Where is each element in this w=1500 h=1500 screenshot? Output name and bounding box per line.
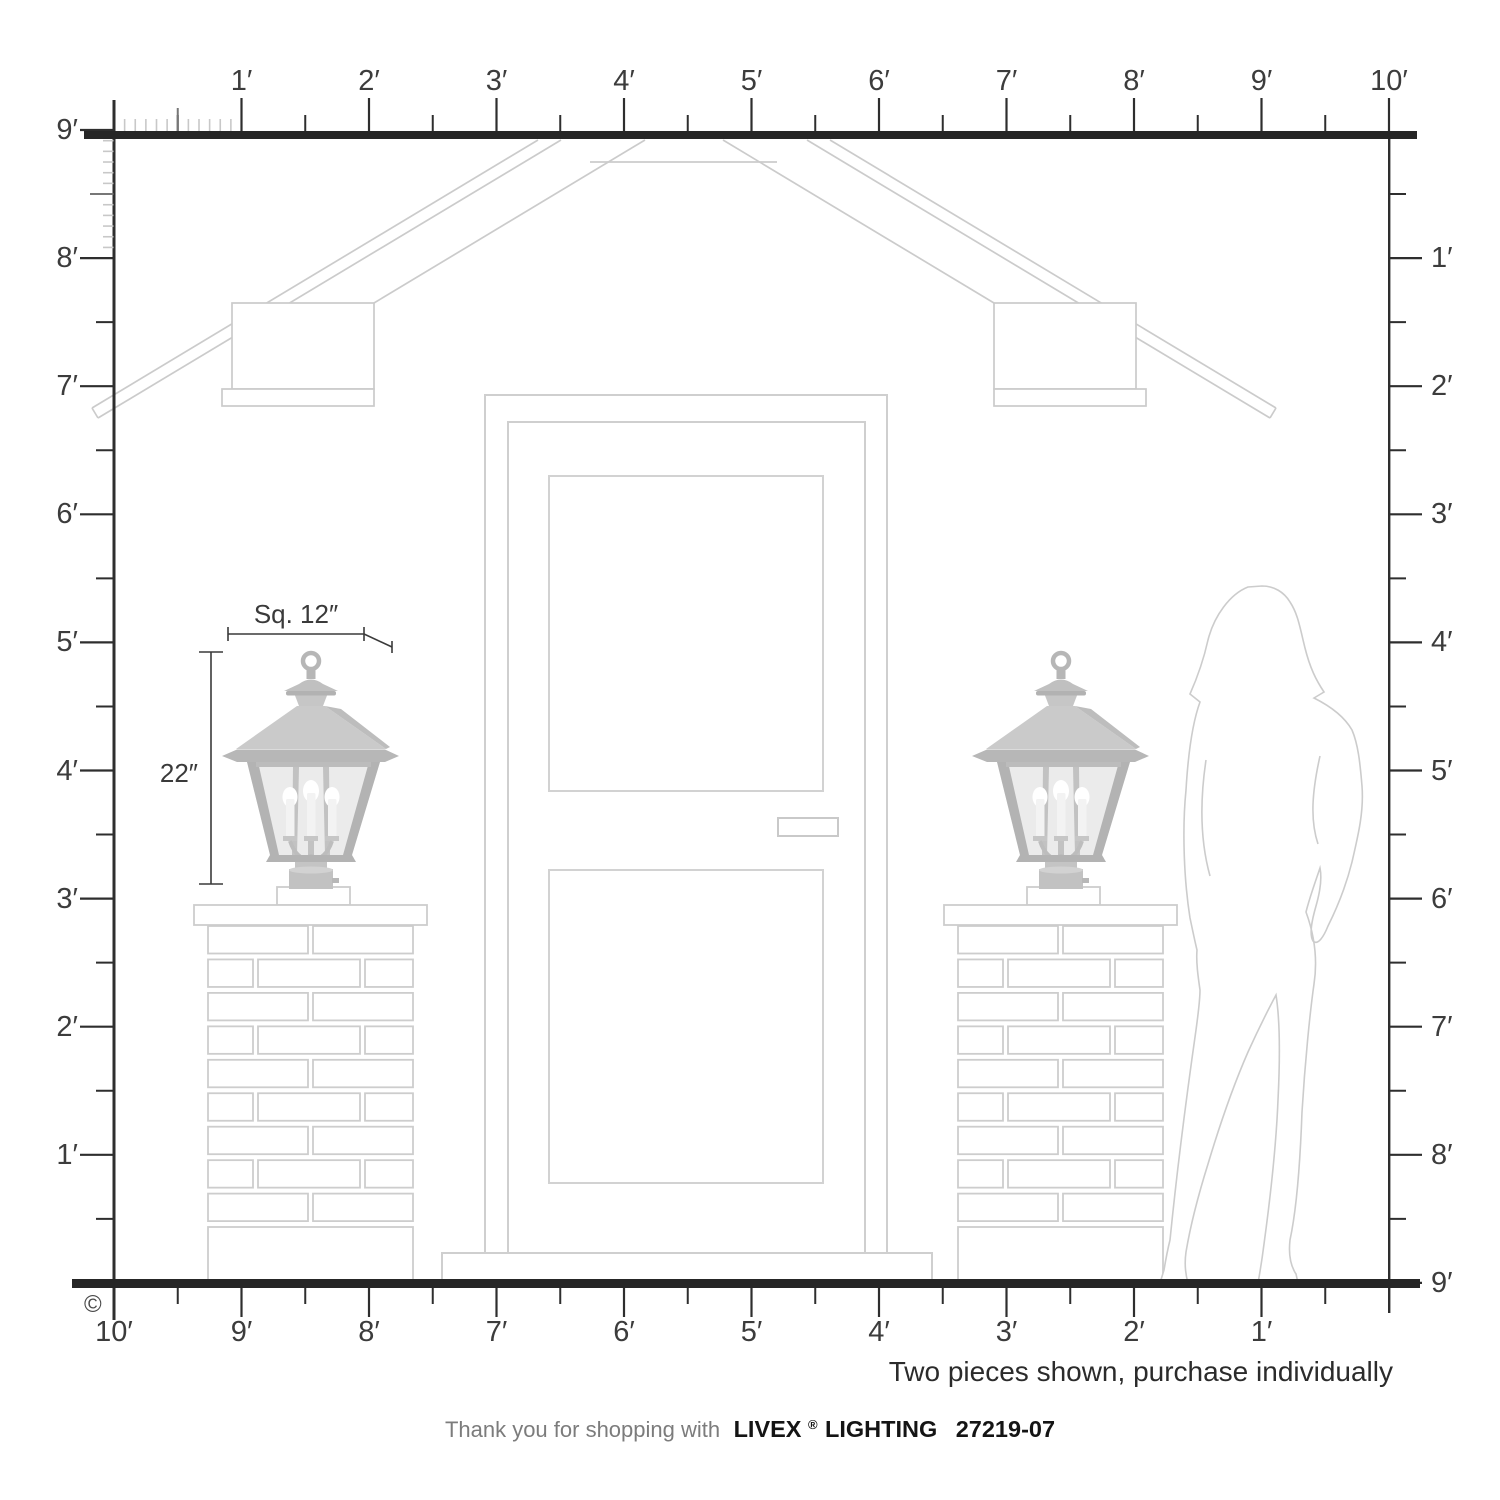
brick	[313, 1194, 413, 1222]
pillar-base-block	[208, 1227, 413, 1283]
brick	[365, 1026, 413, 1054]
brick	[958, 1026, 1003, 1054]
brick	[208, 1194, 308, 1222]
roof-left-eave-cap	[222, 389, 374, 406]
left-ruler-label: 6′	[56, 498, 78, 530]
top-ruler-label: 1′	[231, 65, 253, 97]
bottom-ruler-label: 9′	[231, 1316, 253, 1348]
brick	[958, 1093, 1003, 1121]
footer-brand: LIVEX	[734, 1416, 802, 1442]
bottom-ruler-ticks	[114, 1288, 1325, 1317]
bottom-ruler-label: 2′	[1123, 1316, 1145, 1348]
left-ruler-label: 8′	[56, 242, 78, 274]
bottom-ruler-label: 4′	[868, 1316, 890, 1348]
post-lantern-left	[222, 653, 399, 889]
brick	[958, 1127, 1058, 1155]
brick	[1008, 959, 1110, 987]
bottom-ruler-label: 6′	[613, 1316, 635, 1348]
right-ruler-label: 8′	[1431, 1139, 1453, 1171]
brick	[208, 926, 308, 954]
brick	[258, 1026, 360, 1054]
top-ruler-label: 8′	[1123, 65, 1145, 97]
brick	[208, 1127, 308, 1155]
pillar-cap-stone	[944, 905, 1177, 925]
roof-right-eave-block	[994, 303, 1136, 389]
brick	[1063, 993, 1163, 1021]
bottom-ruler-label: 8′	[358, 1316, 380, 1348]
brick	[258, 1160, 360, 1188]
woman-outline	[1160, 586, 1362, 1283]
brick	[1008, 1160, 1110, 1188]
left-ruler-label: 9′	[56, 114, 78, 146]
scale-diagram-page: Sq. 12″ 22″ 1′ 2′ 3′ 4′ 5′ 6′ 7′ 8′ 9′ 1…	[0, 0, 1500, 1500]
door-lower-panel	[549, 870, 823, 1183]
top-ruler-label: 10′	[1370, 65, 1408, 97]
right-ruler-label: 7′	[1431, 1011, 1453, 1043]
top-ruler-label: 9′	[1251, 65, 1273, 97]
door-threshold-step	[442, 1253, 932, 1283]
registered-trademark-icon: ®	[808, 1417, 818, 1432]
brick	[1008, 1093, 1110, 1121]
left-ruler-label: 2′	[56, 1011, 78, 1043]
brick	[958, 1060, 1058, 1088]
left-ruler-label: 4′	[56, 755, 78, 787]
footer-line: Thank you for shopping with LIVEX ® LIGH…	[445, 1416, 1055, 1442]
pillar-lamp-pedestal	[277, 887, 350, 905]
brick	[958, 926, 1058, 954]
right-ruler-ticks	[1389, 194, 1422, 1283]
footer-thanks-text: Thank you for shopping with	[445, 1417, 720, 1442]
brick	[313, 1060, 413, 1088]
brick	[208, 993, 308, 1021]
brick	[1008, 1026, 1110, 1054]
bottom-ruler-label: 5′	[741, 1316, 763, 1348]
roof-left-tip-cut	[92, 408, 98, 418]
brick	[208, 959, 253, 987]
left-ruler-label: 3′	[56, 883, 78, 915]
left-ruler-label: 7′	[56, 370, 78, 402]
left-ruler-line	[113, 100, 116, 1320]
footer-model-number: 27219-07	[956, 1416, 1055, 1442]
top-ruler-label: 6′	[868, 65, 890, 97]
roof-right-eave-cap	[994, 389, 1146, 406]
left-ruler-label: 5′	[56, 626, 78, 658]
top-ruler-label: 5′	[741, 65, 763, 97]
right-ruler-label: 2′	[1431, 370, 1453, 402]
brick	[365, 1160, 413, 1188]
pillar-cap-stone	[194, 905, 427, 925]
brick	[1115, 1160, 1163, 1188]
width-dimension-label: Sq. 12″	[254, 599, 338, 629]
right-ruler-label: 4′	[1431, 626, 1453, 658]
bottom-ruler-label: 3′	[996, 1316, 1018, 1348]
brick	[958, 1160, 1003, 1188]
brick	[313, 993, 413, 1021]
brick	[258, 1093, 360, 1121]
top-ruler-bar	[84, 131, 1417, 139]
right-ruler-label: 3′	[1431, 498, 1453, 530]
brick	[1063, 1127, 1163, 1155]
brick	[958, 959, 1003, 987]
post-lantern-right	[972, 653, 1149, 889]
bottom-ruler-label: 10′	[95, 1316, 133, 1348]
top-ruler-label: 7′	[996, 65, 1018, 97]
bottom-ruler-label: 1′	[1251, 1316, 1273, 1348]
top-ruler-ticks	[125, 98, 1389, 131]
brick	[208, 1160, 253, 1188]
footer-brand-suffix: LIGHTING	[825, 1416, 937, 1442]
pillar-base-block	[958, 1227, 1163, 1283]
woman-silhouette	[1160, 586, 1362, 1283]
brick	[958, 1194, 1058, 1222]
door-upper-panel	[549, 476, 823, 791]
brick	[208, 1093, 253, 1121]
brick	[313, 1127, 413, 1155]
door-handle-plate	[778, 818, 838, 836]
width-dim-leader	[364, 634, 392, 647]
brick	[258, 959, 360, 987]
top-ruler-label: 4′	[613, 65, 635, 97]
left-brick-pillar	[194, 887, 427, 1283]
brick	[958, 993, 1058, 1021]
top-ruler-label: 3′	[486, 65, 508, 97]
height-dimension-label: 22″	[160, 758, 198, 788]
bottom-ruler-bar	[72, 1279, 1420, 1288]
right-ruler-label: 1′	[1431, 242, 1453, 274]
brick	[365, 959, 413, 987]
left-ruler-label: 1′	[56, 1139, 78, 1171]
bottom-ruler-label: 7′	[486, 1316, 508, 1348]
right-ruler-label: 9′	[1431, 1267, 1453, 1299]
brick	[1063, 1194, 1163, 1222]
right-ruler-label: 6′	[1431, 883, 1453, 915]
brick	[1063, 1060, 1163, 1088]
purchase-note: Two pieces shown, purchase individually	[889, 1356, 1393, 1387]
roof-left-eave-block	[232, 303, 374, 389]
right-ruler-line	[1388, 131, 1390, 1313]
roof-right-tip-cut	[1270, 408, 1276, 418]
roof-left-fascia-edge	[374, 140, 645, 303]
front-door	[442, 395, 932, 1283]
brick	[208, 1060, 308, 1088]
roof-right-fascia-edge	[723, 140, 994, 303]
brick	[1115, 959, 1163, 987]
brick	[365, 1093, 413, 1121]
brick	[313, 926, 413, 954]
brick	[208, 1026, 253, 1054]
top-ruler-label: 2′	[358, 65, 380, 97]
brick	[1063, 926, 1163, 954]
brick	[1115, 1026, 1163, 1054]
brick	[1115, 1093, 1163, 1121]
copyright-mark: ©	[84, 1291, 102, 1318]
right-ruler-label: 5′	[1431, 755, 1453, 787]
scale-diagram-svg: Sq. 12″ 22″ 1′ 2′ 3′ 4′ 5′ 6′ 7′ 8′ 9′ 1…	[0, 0, 1500, 1500]
pillar-lamp-pedestal	[1027, 887, 1100, 905]
right-brick-pillar	[944, 887, 1177, 1283]
left-ruler-ticks	[80, 130, 114, 1219]
porch-roof-line-art	[92, 140, 1276, 418]
